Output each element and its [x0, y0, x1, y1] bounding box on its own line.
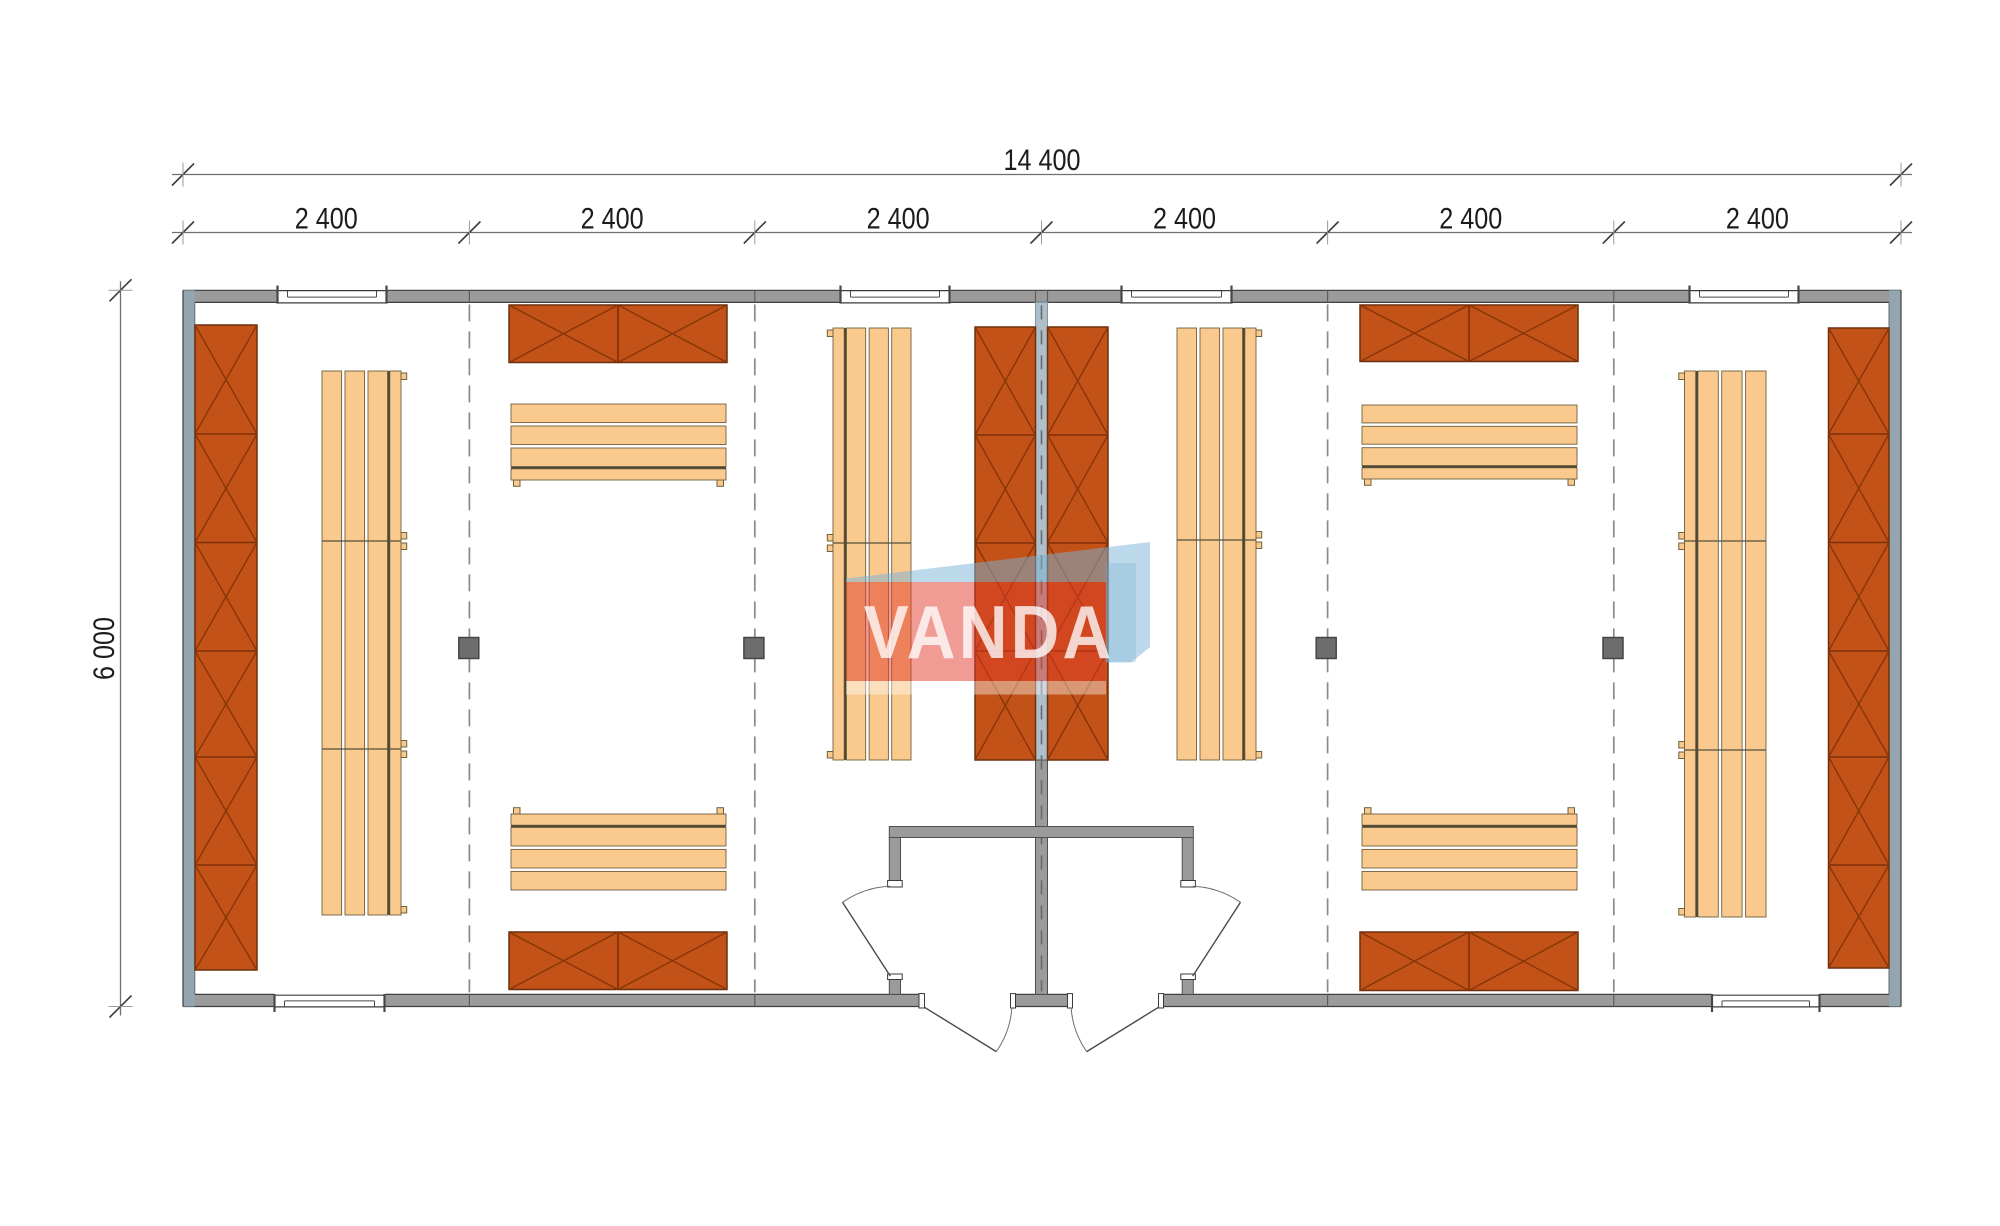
svg-text:2 400: 2 400 [1726, 201, 1789, 235]
svg-text:2 400: 2 400 [1439, 201, 1502, 235]
svg-text:VANDA: VANDA [864, 591, 1115, 675]
svg-text:2 400: 2 400 [867, 201, 930, 235]
svg-text:6 000: 6 000 [87, 617, 121, 680]
svg-text:2 400: 2 400 [581, 201, 644, 235]
svg-text:2 400: 2 400 [295, 201, 358, 235]
svg-text:2 400: 2 400 [1153, 201, 1216, 235]
svg-text:14 400: 14 400 [1003, 143, 1080, 177]
